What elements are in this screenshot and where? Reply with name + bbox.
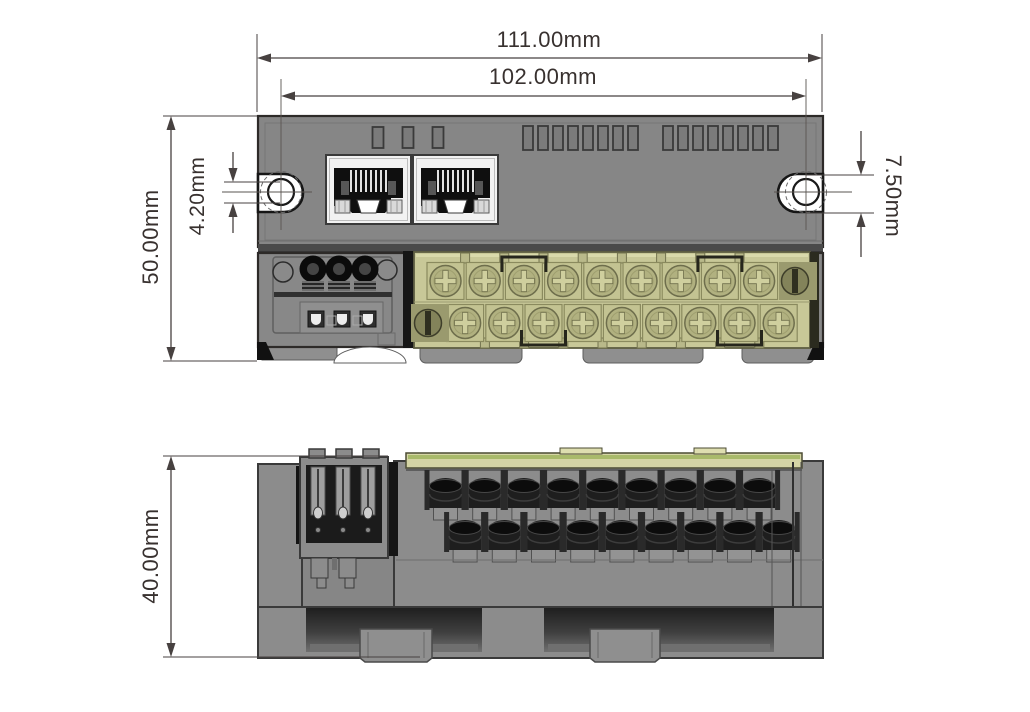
- dimension-drawing: [0, 0, 1030, 712]
- dim-hole-spacing-label: 102.00mm: [489, 64, 597, 90]
- rj45-port-2: [413, 155, 498, 224]
- dim-hole-spacing-lines: [281, 92, 806, 101]
- dim-hole-offset-label: 4.20mm: [186, 157, 210, 236]
- panel-screw-right: [377, 260, 397, 280]
- panel-screw-left: [273, 262, 293, 282]
- dim-front-height-label: 50.00mm: [138, 189, 164, 284]
- dim-front-height-lines: [163, 116, 257, 361]
- terminal-block-edge: [406, 448, 802, 470]
- wire-clamp-ribs: [302, 281, 376, 291]
- power-terminal-rings: [300, 256, 379, 283]
- drawing-canvas: 111.00mm 102.00mm 50.00mm 4.20mm 7.50mm …: [0, 0, 1030, 712]
- terminal-screws-bottom-row: [447, 305, 798, 342]
- terminal-block: [403, 251, 819, 348]
- base-foot-2: [590, 629, 660, 662]
- dim-slot-height-label: 7.50mm: [880, 155, 906, 237]
- bottom-arch-cutout: [334, 347, 406, 363]
- panel-groove-bar: [274, 292, 392, 297]
- release-pockets: [308, 311, 376, 327]
- rj45-port-1: [326, 155, 411, 224]
- dim-overall-width-label: 111.00mm: [497, 27, 602, 53]
- din-rail-base: [258, 607, 823, 662]
- terminal-screws-top-row: [427, 263, 778, 300]
- vent-slot-group-1: [373, 127, 444, 148]
- front-view: [257, 116, 827, 363]
- bottom-view: [258, 448, 823, 662]
- dim-body-depth-label: 40.00mm: [138, 508, 164, 603]
